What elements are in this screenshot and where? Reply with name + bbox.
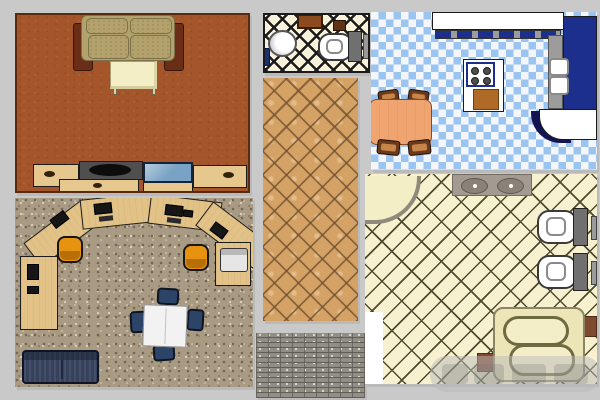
fabric-sofa [81,15,175,61]
burner [483,67,491,75]
watermark-glyph [442,364,468,384]
meeting-chair [157,287,180,305]
burner [471,77,479,85]
double-sink-vanity [452,174,532,196]
toilet-tank [573,208,588,246]
tan-tile-swatch [263,78,358,321]
corner-tub [365,176,421,224]
drawer-knob [93,183,102,188]
monitor [164,204,183,217]
flush-bar [363,34,369,59]
cabinet-strip [435,30,561,39]
top-counter [432,12,564,30]
desk-item [27,286,39,294]
tub-basin-lobe [503,316,569,346]
console-tv-base [143,182,193,193]
watermark-glyph [512,364,546,384]
sink-basin [461,178,488,194]
office-sofa [22,350,99,384]
task-chair [183,244,209,271]
sofa-seat-cushion [88,35,129,59]
flush-bar [591,261,597,285]
kitchen-panel [371,12,597,170]
toilet-bowl-inner [546,262,566,281]
wall-oven [549,76,569,95]
large-bathroom-panel [365,174,597,384]
wall-oven [549,58,569,76]
tv-screen [143,162,193,183]
desk-segment [20,256,58,330]
pedestal-sink [268,30,297,57]
dining-chair [407,139,431,156]
console-right-cabinet [193,165,247,188]
watermark [430,356,600,392]
sofa-back-cushion [86,18,128,34]
dining-chair [376,139,400,156]
toilet-bowl-inner [326,39,343,54]
sofa-back-cushion [130,18,172,34]
burner [483,77,491,85]
sink-pedestal [264,48,270,66]
coffee-table [110,61,157,89]
toilet-tank [348,31,362,62]
cabinet-knob [44,171,55,177]
desk-segment [80,198,155,230]
office-panel [15,198,253,387]
cooktop [466,62,495,87]
toilet-bowl-inner [546,217,566,236]
living-room-panel [15,13,250,193]
meeting-chair [186,308,204,331]
desk-phone [183,209,194,217]
monitor [93,202,112,215]
hamper-box [333,20,346,31]
task-chair [57,236,83,263]
small-bathroom-panel [263,13,370,73]
flush-bar [591,216,597,240]
cabinet-knob [223,172,234,178]
coffee-table-leg [113,88,117,95]
panel-notch [365,312,383,384]
collage-canvas [0,0,600,400]
toilet-tank [573,253,588,291]
wall-cabinet [297,14,323,29]
coffee-table-leg [152,88,156,95]
console-speaker-oval [89,164,131,176]
watermark-glyph [554,364,588,384]
sink-basin [497,178,524,194]
monitor [27,264,39,280]
gray-brick-swatch [256,333,365,398]
sofa-seat-cushion [130,35,171,59]
cutting-board [473,89,499,110]
meeting-table [142,304,187,348]
printer [220,248,248,272]
watermark-glyph [474,364,504,384]
burner [471,67,479,75]
